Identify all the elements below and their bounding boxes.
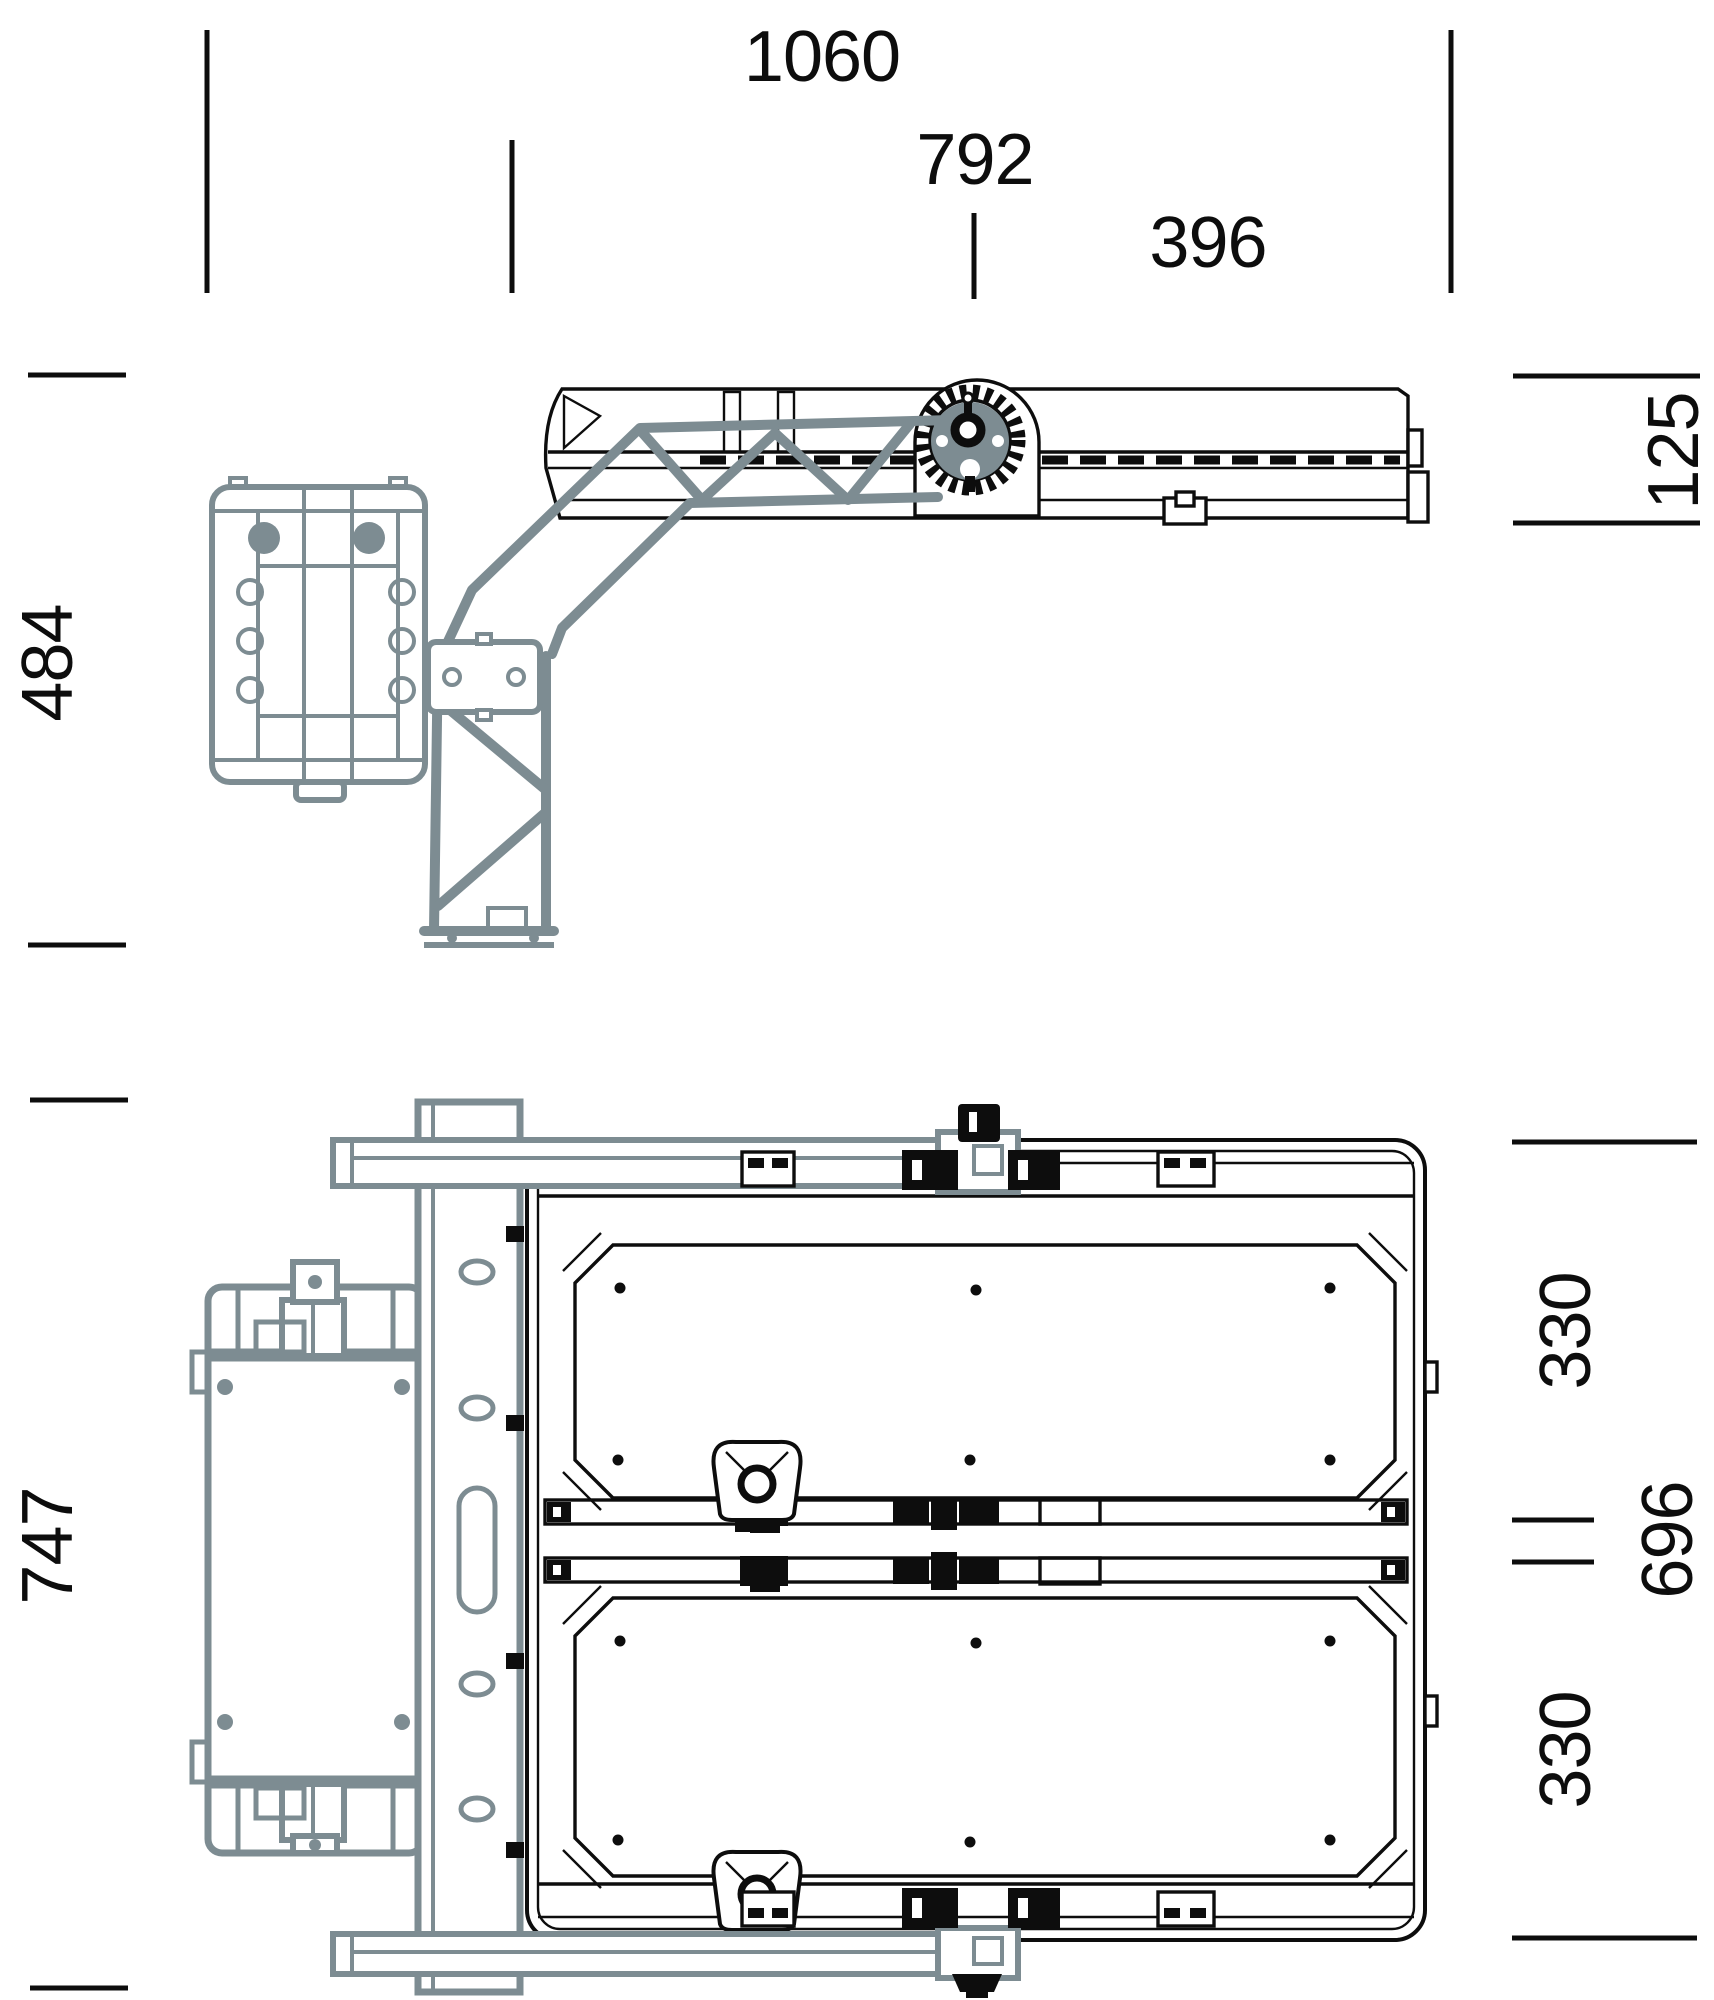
dim-label-upper-module-height: 330: [1530, 1272, 1602, 1389]
dim-label-housing-thickness: 125: [1638, 392, 1710, 509]
technical-drawing: [0, 0, 1714, 2000]
rear-view: [192, 1102, 1437, 1998]
dim-label-overall-width: 1060: [744, 21, 900, 93]
dim-label-frame-height: 696: [1632, 1481, 1704, 1598]
dim-label-half-width: 396: [1149, 207, 1266, 279]
dim-label-rear-overall-height: 747: [12, 1487, 84, 1604]
rear-fixture-frame: [506, 1140, 1437, 1942]
dim-label-bracket-offset-width: 792: [916, 124, 1033, 196]
dim-label-lower-module-height: 330: [1530, 1691, 1602, 1808]
side-view: [212, 380, 1428, 945]
dimension-drawing-page: 1060 792 396 484 125 747 330 696 330: [0, 0, 1714, 2000]
rear-pole-clamp: [192, 1262, 423, 1853]
rear-mount-plate: [418, 1102, 520, 1992]
side-mount-arm: [424, 420, 952, 945]
side-pole-clamp: [212, 478, 425, 800]
dim-label-side-overall-height: 484: [12, 604, 84, 721]
lifting-eye-upper: [713, 1442, 800, 1532]
